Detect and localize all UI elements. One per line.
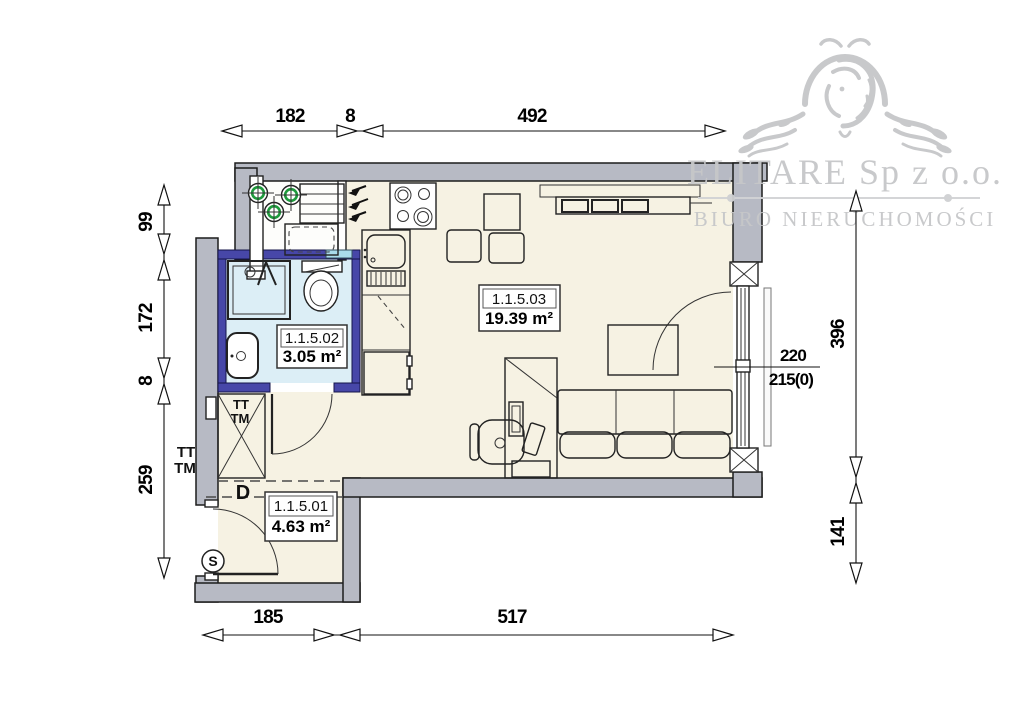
bath-wall-bottom-right (334, 383, 360, 392)
floor-plan: TT TM D S (0, 0, 1024, 722)
lintel-box-bottom (730, 448, 758, 472)
entry-sensor-label: S (208, 553, 217, 569)
room-id: 1.1.5.01 (274, 498, 328, 515)
lintel-box-top (730, 262, 758, 286)
dim-top-3: 492 (517, 106, 547, 127)
wall-left-upper (196, 238, 218, 505)
dim-top-2: 8 (345, 106, 355, 127)
room-area: 19.39 m² (485, 309, 553, 328)
wall-hall-bottom (195, 583, 360, 602)
dim-right-1: 396 (828, 319, 849, 349)
floorplan-page: TT TM D S (0, 0, 1024, 722)
room-id: 1.1.5.03 (492, 291, 546, 308)
window-width-label: 220 (780, 346, 806, 365)
dim-bottom-2: 517 (497, 607, 527, 628)
window-mullion (736, 360, 750, 372)
stove (390, 183, 436, 229)
bath-wall-left (218, 259, 226, 383)
dim-left-1: 99 (136, 212, 157, 232)
dim-left-2: 172 (136, 303, 157, 333)
room-label-bathroom: 1.1.5.02 3.05 m² (277, 325, 347, 368)
dim-left-4: 259 (136, 465, 157, 495)
bath-wall-right (352, 259, 360, 390)
logo-tagline: BIURO NIERUCHOMOŚCI (694, 207, 997, 231)
dim-bottom-1: 185 (253, 607, 284, 628)
room-area: 3.05 m² (283, 347, 342, 366)
meter-panel (206, 397, 216, 419)
dim-right-2: 141 (828, 516, 849, 547)
tt-label: TT (177, 444, 195, 461)
dim-top-1: 182 (275, 106, 305, 127)
shaft-annotations: TT TM (174, 444, 196, 477)
niche-partition-wall (338, 181, 346, 260)
bath-glass-sill (326, 250, 352, 258)
wardrobe-tt-label: TT (233, 397, 249, 412)
wall-room-bottom (343, 478, 762, 497)
window-sill-label: 215(0) (769, 370, 813, 389)
room-label-main: 1.1.5.03 19.39 m² (479, 285, 560, 331)
bath-sink (227, 333, 258, 378)
room-label-hall: 1.1.5.01 4.63 m² (265, 492, 337, 541)
wall-right-bottom (733, 472, 762, 497)
wardrobe-tm-label: TM (231, 411, 250, 426)
tm-label: TM (174, 460, 196, 477)
room-id: 1.1.5.02 (285, 330, 339, 347)
dim-left-3: 8 (136, 376, 157, 386)
logo-company-name: ELITARE Sp z o.o. (687, 152, 1003, 192)
door-zone-label: D (236, 482, 250, 504)
bath-wall-bottom-left (218, 383, 270, 392)
room-area: 4.63 m² (272, 517, 331, 536)
